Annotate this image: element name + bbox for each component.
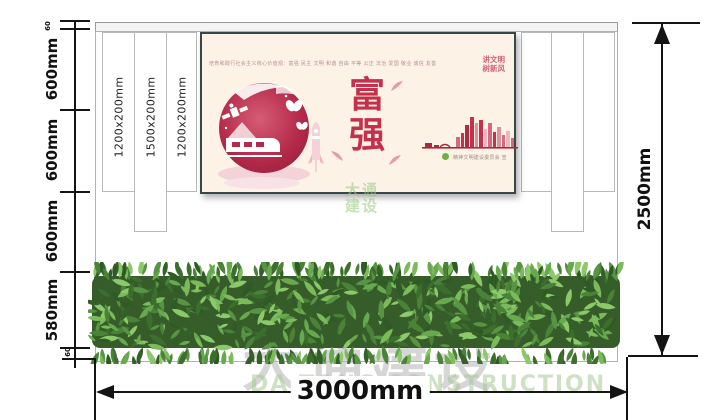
hedge-plant-wall <box>88 262 624 364</box>
credit-text: 精神文明建设委员会 宣 <box>453 154 507 161</box>
right-dim-cap-bottom <box>628 355 698 357</box>
red-circle <box>219 83 309 173</box>
leaf-ornament-icon <box>388 154 402 166</box>
panel-size-label-1: 1200x200mm <box>113 77 126 158</box>
wall-pilaster-right-2 <box>551 32 584 232</box>
dim-label-600-1: 600mm <box>43 38 61 101</box>
credit-badge-icon <box>442 153 449 160</box>
core-values-text-line: 培育和践行社会主义核心价值观：富强 民主 文明 和谐 自由 平等 公正 法治 爱… <box>209 60 439 67</box>
dim-label-60-bottom: 60 <box>64 347 72 357</box>
dim-label-3000: 3000mm <box>291 376 430 406</box>
poster-title-char-2: 强 <box>344 116 390 156</box>
design-drawing-canvas: 1200x200mm 1500x200mm 1200x200mm 培育和践行社会… <box>0 0 720 420</box>
dim-tick <box>60 20 90 22</box>
culture-wall-poster: 培育和践行社会主义核心价值观：富强 民主 文明 和谐 自由 平等 公正 法治 爱… <box>200 32 516 194</box>
panel-size-label-2: 1500x200mm <box>145 77 158 158</box>
leaf-ornament-icon <box>390 80 404 92</box>
leaf-ornament-icon <box>330 150 344 162</box>
arrow-up-icon <box>654 24 670 44</box>
wall-pilaster-right-1 <box>521 32 552 192</box>
panel-size-label-3: 1200x200mm <box>176 77 189 158</box>
slogan-text: 讲文明 树新风 <box>483 55 506 73</box>
dim-label-60-top: 60 <box>44 21 52 31</box>
right-dim-line <box>661 24 663 355</box>
arrow-down-icon <box>654 335 670 355</box>
dim-label-600-2: 600mm <box>43 119 61 182</box>
dim-tick <box>60 109 90 111</box>
paper-cut-circle-art <box>206 72 330 194</box>
dim-tick <box>60 28 90 30</box>
dim-label-2500: 2500mm <box>635 148 655 231</box>
dim-label-600-3: 600mm <box>43 200 61 263</box>
arrow-right-icon <box>610 385 628 399</box>
left-dim-line <box>74 20 76 368</box>
sparkle-dot <box>285 95 288 98</box>
watermark-logo-line-1: 大通 <box>345 182 379 198</box>
paper-crescent-2 <box>224 177 300 189</box>
sparkle-dot <box>225 127 227 129</box>
poster-title-char-1: 富 <box>344 76 390 116</box>
watermark-logo: 大通 建设 <box>345 182 379 214</box>
slogan-line-1: 讲文明 <box>483 55 506 64</box>
wall-pilaster-right-3 <box>583 32 615 192</box>
rocket-icon <box>308 122 324 172</box>
slogan-line-2: 树新风 <box>483 64 506 73</box>
dim-label-580: 580mm <box>43 279 61 342</box>
city-skyline-graphic <box>422 104 522 154</box>
ext-line-bottom-left-h <box>62 358 95 360</box>
arrow-left-icon <box>96 385 114 399</box>
dim-tick <box>60 191 90 193</box>
watermark-logo-line-2: 建设 <box>345 198 379 214</box>
dim-tick <box>60 271 90 273</box>
